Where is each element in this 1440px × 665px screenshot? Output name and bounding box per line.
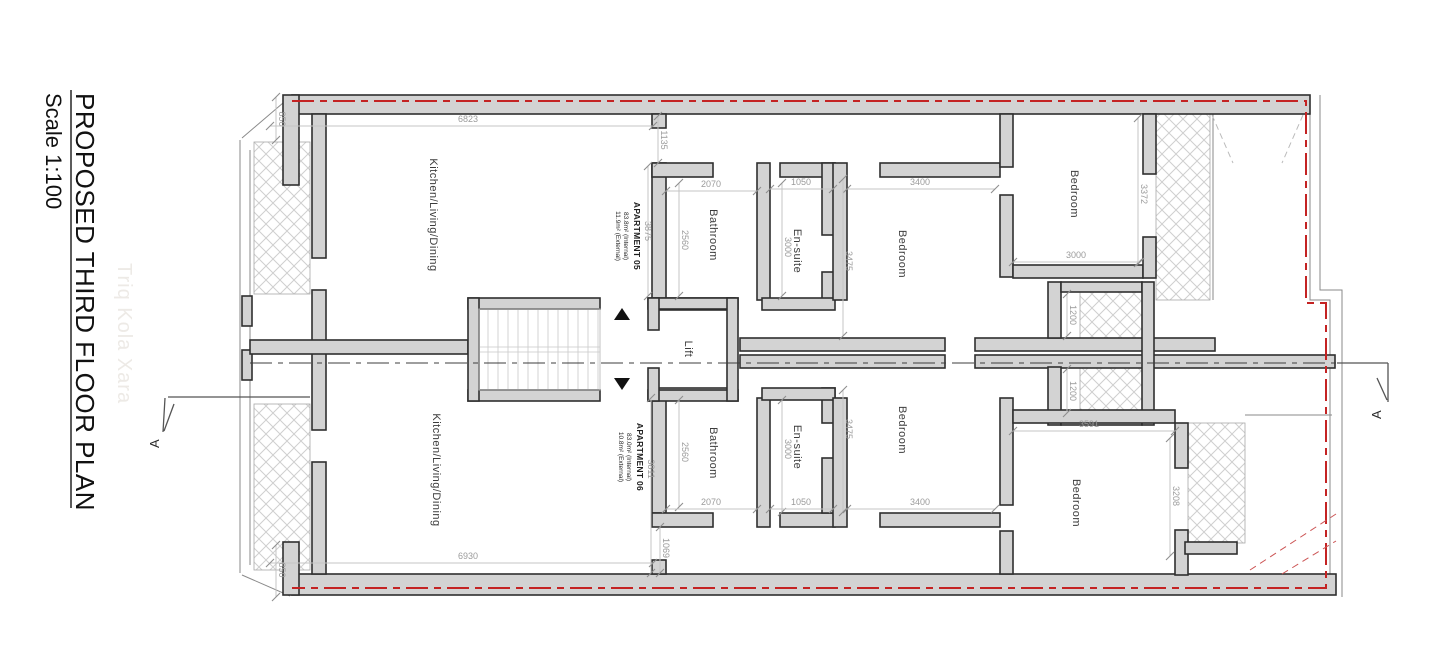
shaft-center-upper: [1080, 292, 1142, 338]
lightwell-left-lower: [254, 404, 310, 570]
svg-text:2560: 2560: [680, 230, 690, 250]
section-marker-right: A: [1337, 363, 1388, 419]
stair-core: [468, 298, 630, 401]
svg-text:1135: 1135: [659, 130, 669, 149]
room-label-kld-apt05: Kitchen/Living/Dining: [427, 158, 439, 271]
room-label-lift: Lift: [682, 341, 694, 358]
svg-text:850: 850: [277, 562, 287, 577]
svg-text:3400: 3400: [910, 497, 930, 507]
apartment05-name: APARTMENT 05: [632, 202, 642, 270]
svg-text:2560: 2560: [680, 442, 690, 462]
shaft-right-upper: [1156, 114, 1210, 300]
room-label-bathroom-apt06: Bathroom: [707, 427, 719, 479]
stair-well: [479, 309, 600, 390]
apartment06-info: APARTMENT 06 83.0m² (Internal) 10.8m² (E…: [617, 423, 645, 491]
wall-top: [292, 95, 1310, 114]
wall-bottom: [292, 574, 1336, 595]
svg-text:3208: 3208: [1171, 486, 1181, 506]
floor-plan-drawing: PROPOSED THIRD FLOOR PLAN Scale 1:100 Tr…: [0, 0, 1440, 665]
room-label-bedroom-mid-apt06: Bedroom: [896, 406, 908, 454]
svg-text:1069: 1069: [661, 538, 671, 558]
shaft-right-lower: [1188, 423, 1245, 543]
apartment05-internal-area: 83.8m² (Internal): [622, 212, 629, 260]
svg-text:3000: 3000: [783, 237, 793, 257]
section-letter: A: [1369, 410, 1384, 419]
apartment06-name: APARTMENT 06: [635, 423, 645, 491]
dim-3000-ensuite-top: 3000: [778, 179, 793, 300]
dim-2070-bottom: 2070: [662, 497, 761, 513]
apartment05-info: APARTMENT 05 83.8m² (Internal) 11.9m² (E…: [614, 202, 642, 270]
lightwell-left-upper: [254, 142, 310, 294]
page-title: PROPOSED THIRD FLOOR PLAN: [70, 93, 100, 511]
svg-text:3372: 3372: [1139, 184, 1149, 204]
shaft-center-lower: [1080, 367, 1142, 415]
room-label-bedroom-right-apt05: Bedroom: [1068, 170, 1080, 218]
title-block: PROPOSED THIRD FLOOR PLAN Scale 1:100: [41, 90, 100, 511]
terrace-red-diagonals: [1250, 514, 1336, 574]
dim-3000-bedroom-right-top: 3000: [1009, 250, 1144, 266]
svg-text:6930: 6930: [458, 551, 478, 561]
apartment05-external-area: 11.9m² (External): [614, 211, 621, 261]
street-watermark: Triq Kola Xara: [113, 263, 135, 404]
svg-text:3475: 3475: [844, 251, 854, 271]
stair-down-arrow-icon: [614, 378, 630, 390]
svg-text:3875: 3875: [643, 221, 653, 241]
svg-text:1050: 1050: [791, 177, 811, 187]
lift-core: Lift: [648, 298, 738, 401]
dim-3400-bottom: 3400: [843, 497, 999, 513]
terrace-projection-lines: [1212, 115, 1303, 163]
dim-2560-top: 2560: [675, 179, 690, 300]
svg-text:1200: 1200: [1068, 305, 1078, 325]
svg-text:3000: 3000: [783, 439, 793, 459]
svg-text:1050: 1050: [791, 497, 811, 507]
svg-text:3000: 3000: [1066, 250, 1086, 260]
svg-text:2070: 2070: [701, 179, 721, 189]
svg-text:3811: 3811: [646, 459, 656, 478]
svg-text:1200: 1200: [1068, 381, 1078, 401]
room-label-bedroom-mid-apt05: Bedroom: [896, 230, 908, 278]
svg-text:3400: 3400: [910, 177, 930, 187]
room-label-bedroom-right-apt06: Bedroom: [1070, 479, 1082, 527]
stair-treads: [480, 310, 600, 389]
pier-top-left: [283, 95, 299, 185]
dim-1200-upper: 1200: [1063, 290, 1078, 340]
svg-text:3475: 3475: [844, 419, 854, 439]
dim-2560-bottom: 2560: [675, 396, 690, 511]
svg-text:850: 850: [277, 111, 287, 126]
scale-label: Scale 1:100: [41, 93, 66, 209]
dim-3400-top: 3400: [843, 177, 999, 193]
room-label-bathroom-apt05: Bathroom: [707, 209, 719, 261]
section-letter: A: [147, 439, 162, 448]
svg-text:3591: 3591: [1079, 419, 1099, 429]
apartment06-external-area: 10.8m² (External): [617, 432, 624, 482]
apartment06-internal-area: 83.0m² (Internal): [625, 433, 632, 481]
dim-2070-top: 2070: [662, 179, 761, 195]
svg-text:6823: 6823: [458, 114, 478, 124]
svg-text:2070: 2070: [701, 497, 721, 507]
room-label-kld-apt06: Kitchen/Living/Dining: [430, 413, 442, 526]
stair-up-arrow-icon: [614, 308, 630, 320]
